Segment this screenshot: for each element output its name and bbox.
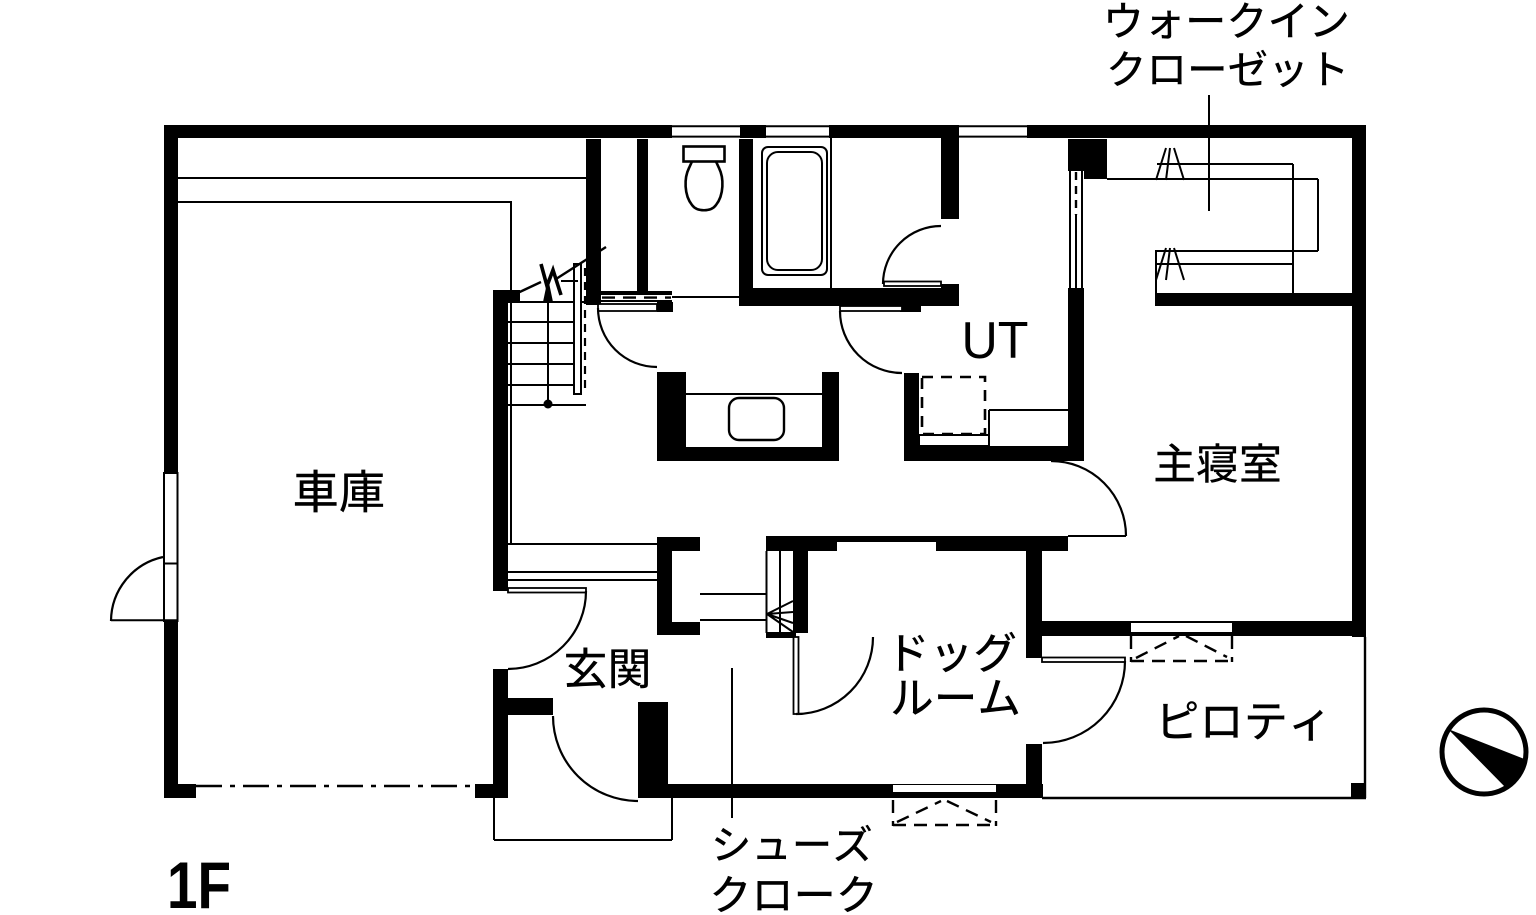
svg-text:UT: UT (962, 312, 1029, 370)
svg-text:1F: 1F (167, 848, 231, 915)
